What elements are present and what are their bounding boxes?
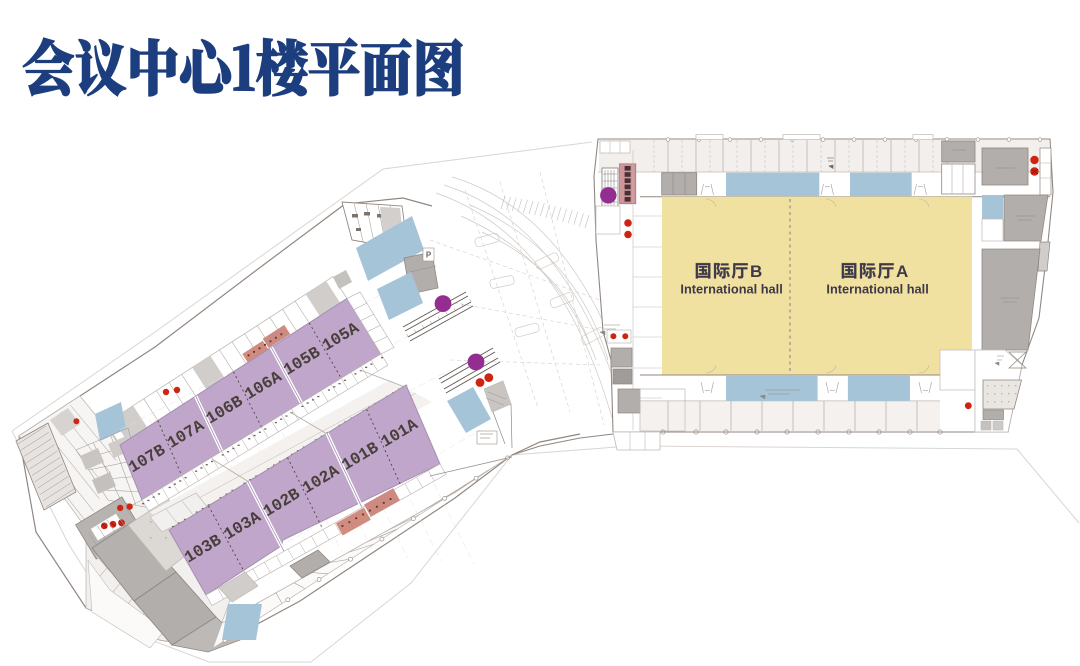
svg-text:A: A [896,262,908,281]
svg-text:International hall: International hall [680,282,782,297]
svg-text:P: P [426,251,432,260]
svg-text:B: B [750,262,762,281]
svg-text:International hall: International hall [826,282,928,297]
